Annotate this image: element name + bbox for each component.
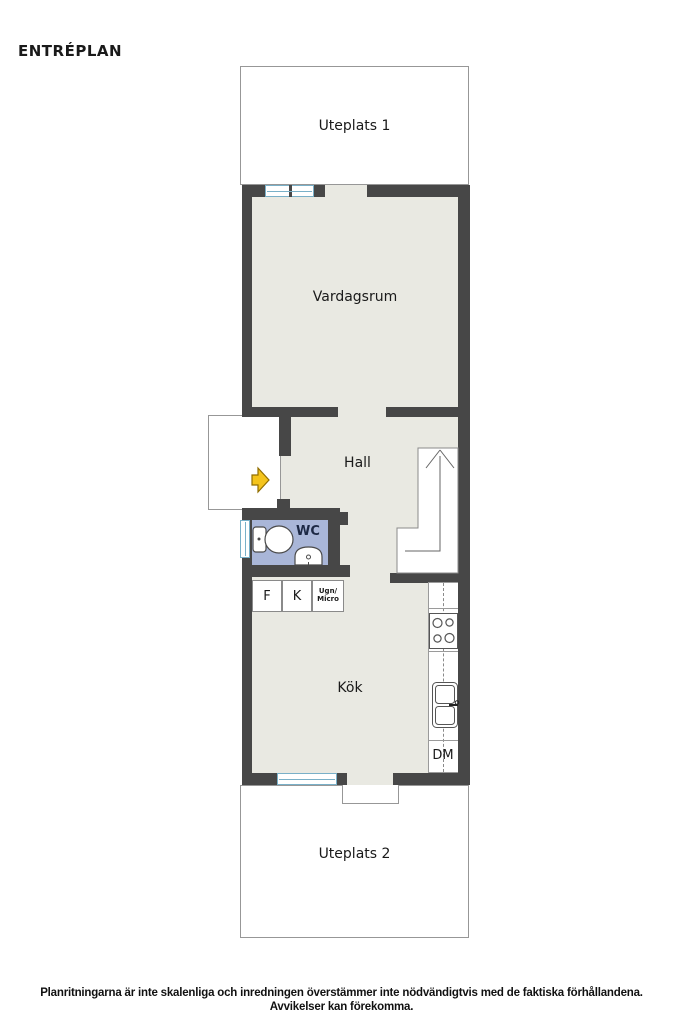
disclaimer-text: Planritningarna är inte skalenliga och i…: [0, 986, 683, 1015]
appliance-oven-micro: Ugn/Micro: [312, 580, 344, 612]
window-top: [265, 185, 314, 197]
wall-segment: [393, 773, 470, 785]
counter-divider: [428, 608, 458, 609]
entry-arrow-icon: [251, 466, 271, 494]
disclaimer-line1: Planritningarna är inte skalenliga och i…: [0, 986, 683, 1000]
room-label-wc: WC: [296, 524, 320, 539]
appliance-fridge-label: K: [293, 589, 302, 604]
appliance-freezer: F: [252, 580, 282, 612]
wall-segment: [367, 185, 470, 197]
room-label-uteplats1: Uteplats 1: [319, 118, 391, 134]
appliance-oven-micro-label: Ugn/Micro: [317, 588, 339, 603]
appliance-fridge: K: [282, 580, 312, 612]
window-pane-divider: [289, 185, 292, 197]
floorplan-page: ENTRÉPLAN Uteplats 1 Uteplats 2: [0, 0, 683, 1024]
appliance-freezer-label: F: [263, 589, 270, 604]
wall-segment: [242, 508, 340, 520]
room-label-vardagsrum: Vardagsrum: [252, 289, 458, 305]
patio-uteplats1: Uteplats 1: [240, 66, 469, 185]
counter-divider: [428, 651, 458, 652]
window-wc: [240, 520, 250, 558]
wall-segment: [242, 185, 252, 415]
wall-segment: [386, 407, 470, 417]
stove-icon: [429, 613, 458, 649]
toilet-icon: [252, 524, 294, 555]
wall-segment: [313, 185, 325, 197]
room-label-uteplats2: Uteplats 2: [319, 846, 391, 862]
wall-segment: [242, 773, 277, 785]
wall-segment: [337, 773, 347, 785]
wall-segment: [242, 565, 350, 577]
window-bottom: [277, 773, 337, 785]
page-title: ENTRÉPLAN: [18, 42, 122, 60]
patio2-step: [342, 784, 399, 804]
appliance-dishwasher-label: DM: [428, 748, 458, 763]
counter-divider: [428, 740, 458, 741]
kitchen-counter: [428, 582, 458, 773]
room-label-hall: Hall: [300, 455, 415, 471]
disclaimer-line2: Avvikelser kan förekomma.: [0, 1000, 683, 1014]
washbasin-icon: [294, 546, 323, 566]
entry-porch: [208, 415, 281, 510]
wall-segment: [279, 407, 291, 456]
room-label-kok: Kök: [252, 680, 448, 696]
patio-uteplats2: Uteplats 2: [240, 785, 469, 938]
